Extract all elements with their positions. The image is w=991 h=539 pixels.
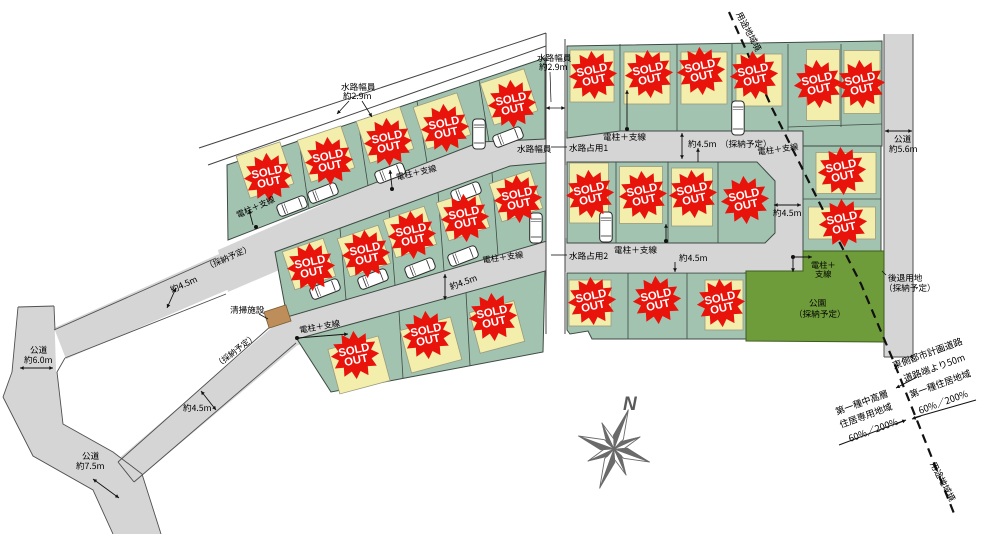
svg-text:N: N [623, 394, 638, 415]
